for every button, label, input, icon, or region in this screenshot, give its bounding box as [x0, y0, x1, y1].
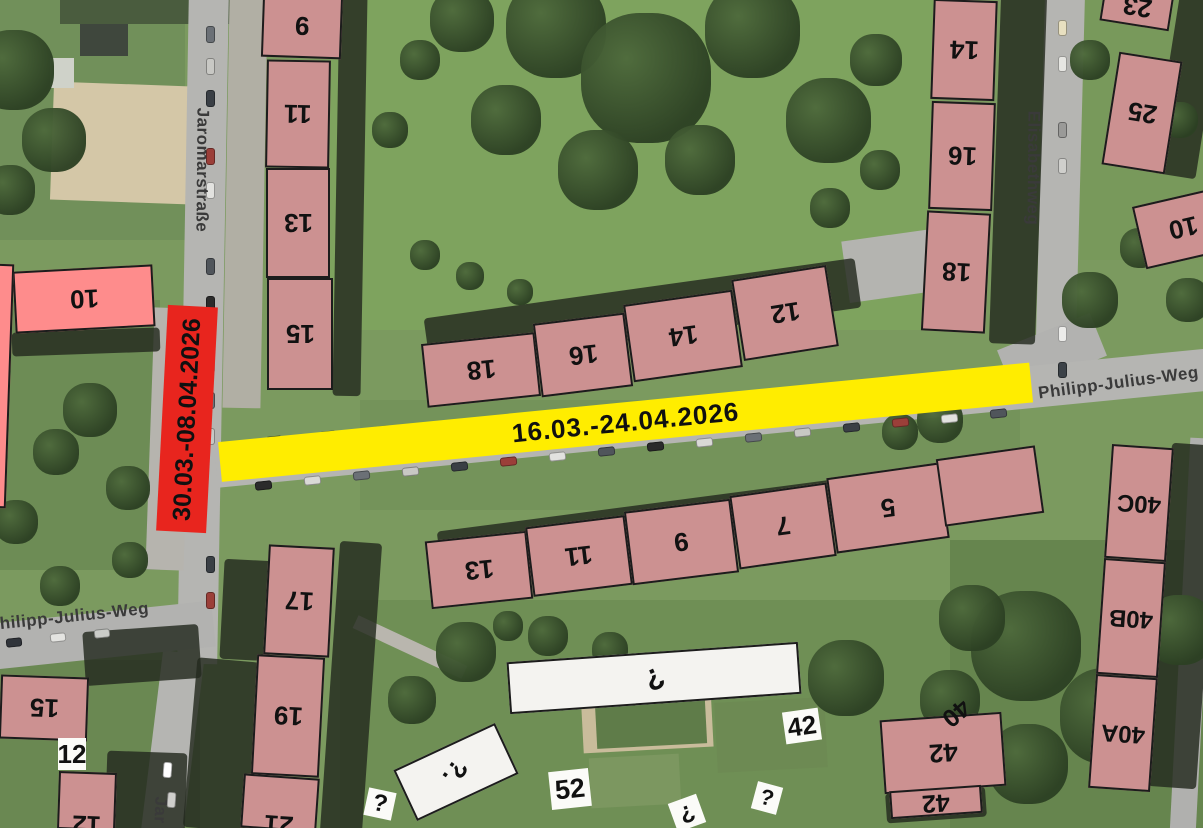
garden-plot — [589, 754, 681, 809]
building-number: 42 — [921, 789, 950, 816]
parked-car — [50, 632, 67, 643]
building: 12 — [731, 265, 839, 361]
building: 21 — [240, 773, 320, 828]
tree — [705, 0, 800, 78]
map-label: 42 — [782, 708, 822, 745]
tree — [63, 383, 117, 437]
building-number: 10 — [1166, 212, 1200, 244]
parked-car — [206, 592, 215, 609]
building-number: 12 — [769, 298, 802, 328]
tree — [410, 240, 440, 270]
building: 18 — [421, 332, 541, 408]
parked-car — [206, 556, 215, 573]
building-number: 18 — [941, 258, 971, 285]
tree — [400, 40, 440, 80]
building-number: 11 — [564, 541, 594, 570]
building-number: 9 — [673, 528, 691, 556]
parked-car — [162, 762, 172, 779]
parked-car — [206, 26, 215, 43]
building-number: 12 — [71, 811, 101, 828]
parked-car — [941, 413, 959, 424]
tree — [106, 466, 150, 510]
tree — [507, 279, 533, 305]
building: 11 — [525, 515, 633, 597]
tree — [528, 616, 568, 656]
building-number: 16 — [567, 340, 599, 369]
map-label: ? — [363, 787, 396, 820]
building: 11 — [265, 59, 331, 168]
building-number: 13 — [463, 556, 494, 585]
tree — [665, 125, 735, 195]
building-number: 40C — [1116, 489, 1162, 516]
building-number: 42 — [928, 739, 959, 767]
building: 40A — [1088, 674, 1158, 792]
tree — [40, 566, 80, 606]
tree — [456, 262, 484, 290]
parked-car — [1058, 20, 1067, 36]
building-number: 13 — [284, 210, 313, 236]
building: 10 — [12, 264, 155, 333]
building — [936, 445, 1044, 526]
tree — [808, 640, 884, 716]
parked-car — [990, 408, 1008, 419]
tree — [1070, 40, 1110, 80]
parked-car — [206, 58, 215, 75]
parked-car — [500, 456, 518, 467]
building-number: 11 — [284, 101, 312, 127]
building-number: 10 — [69, 285, 99, 312]
building-number: 40B — [1108, 604, 1154, 631]
street-label-jaromarstrasse-bottom: Jar — [149, 788, 171, 828]
closure-dates-red: 30.03.-08.04.2026 — [167, 317, 207, 521]
building-number: 9 — [294, 13, 309, 39]
building: 14 — [623, 290, 743, 383]
parked-car — [255, 480, 273, 491]
building: 40B — [1096, 558, 1166, 678]
tree — [22, 108, 86, 172]
tree — [112, 542, 148, 578]
building-number: 7 — [774, 512, 792, 540]
building-number: 15 — [29, 695, 59, 722]
tree — [471, 85, 541, 155]
parked-car — [1058, 326, 1067, 342]
building-number: 14 — [949, 37, 979, 64]
parked-car — [1058, 362, 1067, 378]
building: 16 — [928, 101, 996, 211]
building: 15 — [0, 674, 89, 741]
map-label: 52 — [548, 768, 592, 810]
tree — [493, 611, 523, 641]
building: 19 — [251, 654, 325, 777]
building-number: 14 — [667, 321, 699, 351]
building: 16 — [533, 313, 633, 398]
building: 17 — [263, 544, 335, 657]
parked-car — [206, 258, 215, 275]
tree — [1062, 272, 1118, 328]
tree — [33, 429, 79, 475]
building: 7 — [729, 483, 836, 570]
building-number: ? — [640, 661, 669, 696]
parked-car — [94, 628, 111, 639]
tree — [786, 78, 871, 163]
building: 14 — [930, 0, 997, 101]
map-label: 12 — [58, 738, 86, 770]
tree — [1166, 278, 1203, 322]
parked-car — [794, 427, 812, 438]
tree — [850, 34, 902, 86]
tree — [388, 676, 436, 724]
parked-car — [1058, 56, 1067, 72]
tree — [558, 130, 638, 210]
tree — [581, 13, 711, 143]
aerial-closure-map: Jaromarstraße Jar Elisabethweg Philipp-J… — [0, 0, 1203, 828]
parked-car — [1058, 158, 1067, 174]
building-number: ?. — [439, 755, 474, 789]
building: 15 — [267, 278, 333, 390]
building: 9 — [261, 0, 343, 59]
tree — [810, 188, 850, 228]
building-number: 40A — [1100, 719, 1146, 746]
tree — [430, 0, 494, 52]
parked-car — [745, 432, 763, 443]
building-number: 23 — [1121, 0, 1154, 22]
parked-car — [402, 466, 420, 477]
building: 40C — [1104, 444, 1174, 562]
building-number: 21 — [263, 811, 294, 828]
tree — [436, 622, 496, 682]
building-shadow — [105, 751, 188, 828]
building-number: 18 — [465, 356, 496, 385]
tree — [860, 150, 900, 190]
parked-car — [1058, 122, 1067, 138]
parked-car — [304, 475, 322, 486]
street-label-elisabethweg: Elisabethweg — [1022, 103, 1043, 233]
building-number: 16 — [947, 143, 977, 170]
parked-car — [6, 637, 23, 648]
tree — [939, 585, 1005, 651]
walkway — [222, 0, 267, 408]
building: 18 — [921, 210, 991, 333]
building: 13 — [425, 531, 534, 609]
building-number: 5 — [879, 494, 897, 522]
building: 13 — [266, 168, 330, 278]
building: 9 — [624, 499, 739, 585]
building-number: 19 — [273, 702, 303, 729]
parked-car — [451, 461, 469, 472]
building: 12 — [57, 771, 117, 828]
street-label-jaromarstrasse: Jaromarstraße — [191, 90, 212, 250]
parked-car — [696, 437, 714, 448]
parked-car — [549, 451, 567, 462]
building-number: 17 — [284, 587, 314, 614]
building-number: 15 — [286, 321, 315, 347]
building: 5 — [826, 462, 949, 553]
tree — [372, 112, 408, 148]
building-number: 25 — [1126, 98, 1159, 128]
building-shadow — [333, 0, 368, 396]
